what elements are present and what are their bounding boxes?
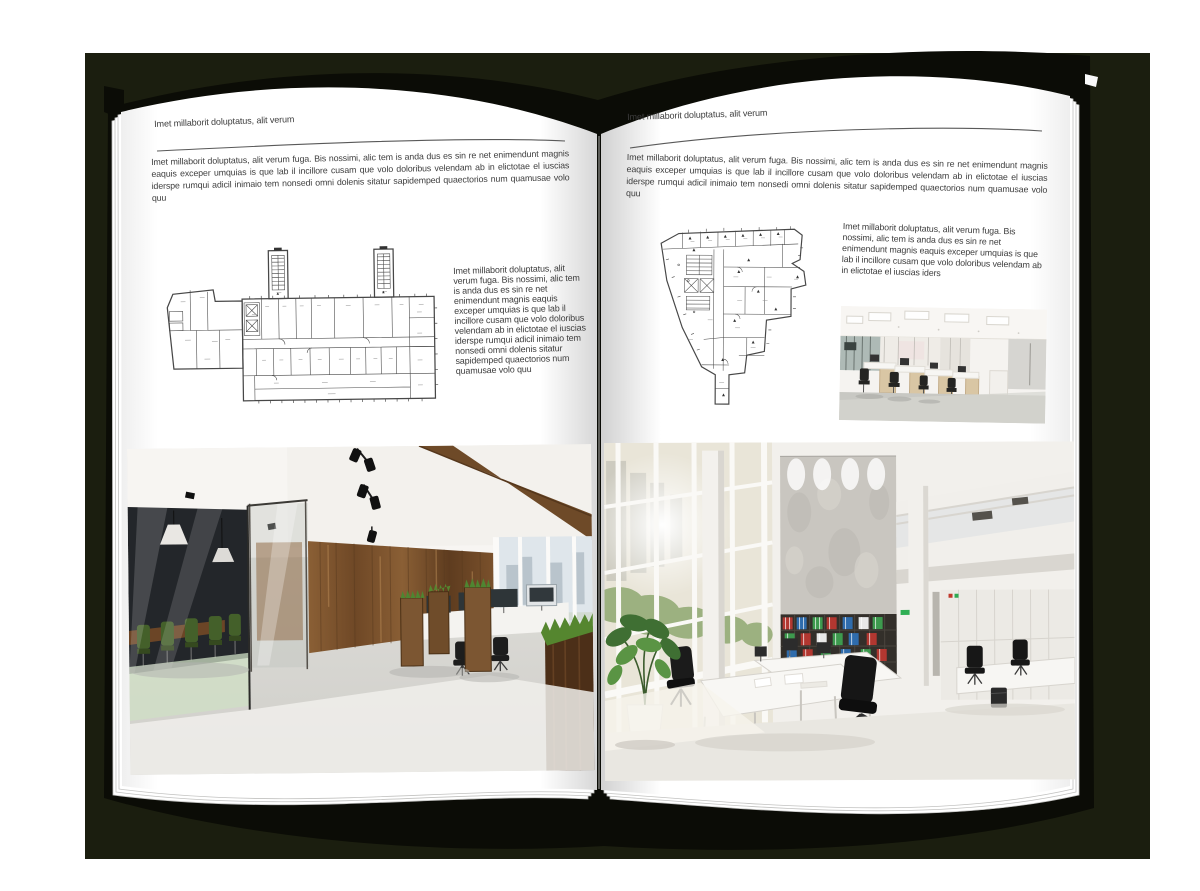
ceiling-panels xyxy=(840,306,1046,340)
fire-sign xyxy=(949,594,953,598)
column-shade xyxy=(923,486,929,686)
right-intro-paragraph: Imet millaborit doluptatus, alit verum f… xyxy=(626,151,1048,208)
exit-sign xyxy=(901,610,910,615)
floorplan-interior xyxy=(662,230,800,389)
right-floorplan-figure xyxy=(648,221,835,420)
left-side-text: Imet millaborit doluptatus, alit verum f… xyxy=(453,263,589,376)
left-intro-paragraph: Imet millaborit doluptatus, alit verum f… xyxy=(151,147,570,204)
floorplan-annotations xyxy=(181,291,425,396)
floorplan-outline xyxy=(660,229,806,405)
cabinet xyxy=(989,371,1007,395)
floorplan-markers xyxy=(274,246,388,295)
photo-ceiling-right xyxy=(287,444,592,547)
floorplan-annotations xyxy=(688,237,798,383)
wall-screen xyxy=(844,342,856,350)
exit-sign xyxy=(955,594,959,598)
brochure-mockup-scene: Imet millaborit doluptatus, alit verum I… xyxy=(0,0,1200,891)
right-office-photo xyxy=(604,441,1075,781)
floorplan-outer-walls xyxy=(167,248,436,401)
concrete-wall xyxy=(780,456,897,614)
glass-pane xyxy=(248,500,310,672)
right-side-text: Imet millaborit doluptatus, alit verum f… xyxy=(841,221,1046,282)
left-office-photo xyxy=(127,444,594,775)
left-floorplan-figure xyxy=(157,244,447,412)
floorplan-interior-walls xyxy=(169,253,436,402)
right-small-office-photo xyxy=(839,306,1047,424)
